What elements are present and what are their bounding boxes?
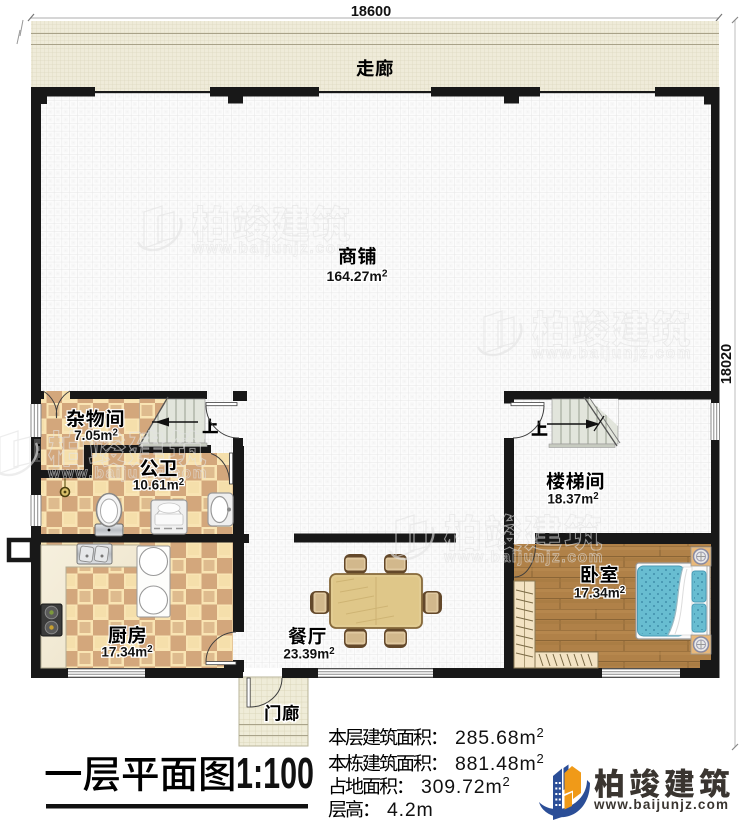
svg-text:309.72m2: 309.72m2 — [421, 774, 511, 798]
svg-text:285.68m2: 285.68m2 — [455, 725, 545, 749]
svg-text:18.37m2: 18.37m2 — [547, 491, 598, 506]
svg-text:www.baijunjz.com: www.baijunjz.com — [443, 549, 604, 566]
svg-text:www.baijunjz.com: www.baijunjz.com — [191, 240, 352, 257]
svg-text:881.48m2: 881.48m2 — [455, 751, 545, 775]
svg-text:18020: 18020 — [719, 344, 735, 384]
svg-text:1:100: 1:100 — [236, 749, 314, 798]
svg-text:7.05m2: 7.05m2 — [74, 428, 118, 443]
svg-text:www.baijunjz.com: www.baijunjz.com — [593, 797, 729, 812]
svg-text:17.34m2: 17.34m2 — [574, 585, 625, 600]
svg-text:164.27m2: 164.27m2 — [327, 268, 388, 284]
svg-text:17.34m2: 17.34m2 — [101, 644, 152, 659]
svg-text:4.2m: 4.2m — [387, 799, 434, 821]
svg-text:10.61m2: 10.61m2 — [133, 477, 184, 492]
svg-text:18600: 18600 — [351, 4, 391, 20]
svg-text:www.baijunjz.com: www.baijunjz.com — [531, 345, 692, 362]
svg-text:23.39m2: 23.39m2 — [283, 646, 334, 661]
